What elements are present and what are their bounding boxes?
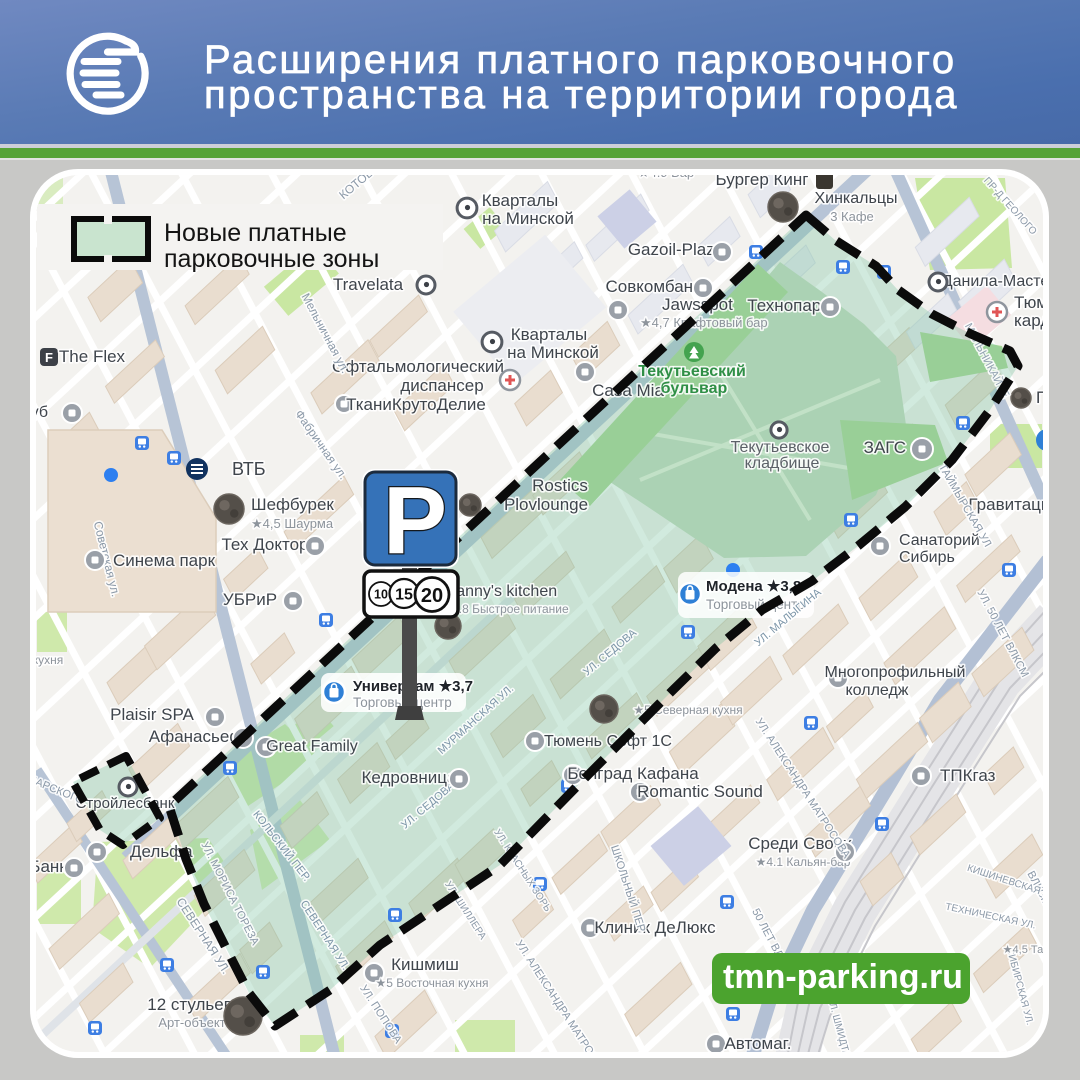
svg-text:ЗАГС: ЗАГС: [864, 438, 906, 457]
svg-text:Многопрофильный: Многопрофильный: [825, 664, 966, 681]
svg-text:ТканиКрутоДелие: ТканиКрутоДелие: [346, 395, 486, 414]
svg-text:Plovlounge: Plovlounge: [504, 495, 588, 514]
svg-text:★4,7 Крафтовый бар: ★4,7 Крафтовый бар: [640, 315, 768, 330]
svg-text:диспансер: диспансер: [400, 376, 483, 395]
svg-text:на Минской: на Минской: [507, 343, 599, 362]
svg-text:Автомаг.: Автомаг.: [724, 1034, 791, 1052]
svg-text:Gazoil-Plaza: Gazoil-Plaza: [628, 240, 725, 259]
svg-text:★4.9 Бар: ★4.9 Бар: [638, 175, 694, 180]
svg-text:★4,5 Шаурма: ★4,5 Шаурма: [251, 516, 334, 531]
svg-text:Данила-Мастер: Данила-Мастер: [942, 273, 1043, 290]
svg-text:кардиол: кардиол: [1014, 311, 1043, 330]
svg-text:Тюмень: Тюмень: [1014, 293, 1043, 312]
svg-text:F: F: [45, 350, 53, 365]
svg-text:бульвар: бульвар: [661, 380, 728, 397]
svg-text:Санаторий: Санаторий: [899, 532, 980, 549]
svg-text:Plaisir SPA: Plaisir SPA: [110, 705, 194, 724]
svg-text:Great Family: Great Family: [266, 738, 358, 755]
svg-text:Клиник ДеЛюкс: Клиник ДеЛюкс: [594, 918, 716, 937]
svg-text:20: 20: [421, 585, 443, 607]
svg-text:Кедровница: Кедровница: [362, 768, 457, 787]
svg-text:Кварталы: Кварталы: [511, 325, 587, 344]
svg-text:уб: уб: [36, 404, 48, 421]
svg-text:УБРиР: УБРиР: [223, 590, 277, 609]
svg-text:★5 Восточная кухня: ★5 Восточная кухня: [375, 976, 488, 990]
svg-text:Афанасьеф: Афанасьеф: [149, 727, 244, 746]
svg-text:Хинкальцы: Хинкальцы: [814, 190, 897, 207]
svg-text:на Минской: на Минской: [482, 209, 574, 228]
svg-text:Кишмиш: Кишмиш: [391, 955, 459, 974]
svg-text:★4,5 Тан: ★4,5 Тан: [1003, 944, 1043, 956]
svg-text:Бургер Кинг: Бургер Кинг: [716, 175, 809, 189]
svg-text:Гравитация: Гравитация: [968, 495, 1043, 514]
svg-text:Rostics: Rostics: [532, 476, 588, 495]
svg-text:tmn-parking.ru: tmn-parking.ru: [723, 958, 963, 996]
svg-text:ТПКгаз: ТПКгаз: [940, 766, 996, 785]
svg-text:кладбище: кладбище: [745, 455, 820, 472]
svg-text:ВТБ: ВТБ: [232, 459, 266, 479]
svg-text:Совкомбанк: Совкомбанк: [606, 277, 702, 296]
svg-text:парковочные зоны: парковочные зоны: [164, 245, 379, 273]
svg-text:Синема парк: Синема парк: [113, 551, 216, 570]
svg-text:Manny's kitchen: Manny's kitchen: [443, 583, 557, 600]
svg-text:Технопарк: Технопарк: [747, 296, 829, 315]
svg-text:Модена ★3,8: Модена ★3,8: [706, 578, 801, 595]
svg-text:Банк: Банк: [36, 857, 67, 876]
svg-text:Офтальмологический: Офтальмологический: [332, 357, 504, 376]
svg-text:Кварталы: Кварталы: [482, 191, 558, 210]
svg-text:Новые платные: Новые платные: [164, 219, 347, 247]
svg-text:12 стульев: 12 стульев: [147, 995, 233, 1014]
svg-text:10: 10: [374, 588, 388, 602]
svg-text:P: P: [383, 467, 447, 574]
svg-text:Шефбурек: Шефбурек: [251, 495, 334, 514]
svg-text:кухня: кухня: [36, 653, 63, 667]
svg-text:Travelata: Travelata: [333, 275, 404, 294]
svg-text:The Flex: The Flex: [59, 347, 126, 366]
svg-text:Арт-объект: Арт-объект: [158, 1015, 225, 1030]
svg-text:Пя: Пя: [1036, 388, 1043, 407]
svg-text:Стройлесбанк: Стройлесбанк: [76, 795, 175, 812]
svg-text:колледж: колледж: [846, 682, 909, 699]
svg-text:Текутьевский: Текутьевский: [638, 363, 746, 380]
svg-text:★4.8 Быстрое питание: ★4.8 Быстрое питание: [441, 602, 569, 616]
svg-text:Romantic Sound: Romantic Sound: [637, 782, 763, 801]
svg-text:Сибирь: Сибирь: [899, 549, 955, 566]
svg-text:Тюмень Софт 1С: Тюмень Софт 1С: [544, 733, 672, 750]
svg-text:Тех Доктор: Тех Доктор: [221, 535, 308, 554]
svg-text:Текутьевское: Текутьевское: [731, 439, 830, 456]
svg-text:3 Кафе: 3 Кафе: [830, 209, 874, 224]
svg-text:15: 15: [395, 587, 413, 604]
